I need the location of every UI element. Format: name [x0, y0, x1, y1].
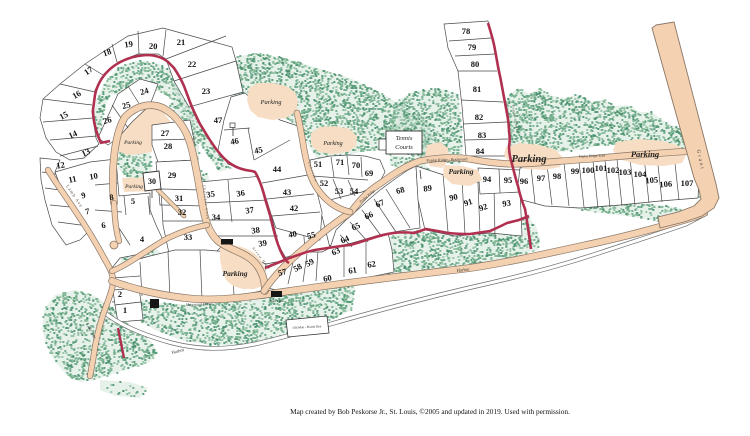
svg-text:98: 98 — [553, 171, 562, 181]
svg-text:Map created by Bob Peskorse Jr: Map created by Bob Peskorse Jr., St. Lou… — [290, 407, 570, 416]
svg-text:Tennis: Tennis — [396, 135, 413, 142]
svg-text:53: 53 — [335, 186, 344, 196]
svg-text:47: 47 — [214, 115, 223, 125]
svg-text:107: 107 — [681, 178, 695, 188]
svg-text:61: 61 — [347, 264, 357, 275]
svg-text:69: 69 — [365, 168, 374, 178]
svg-text:62: 62 — [366, 258, 376, 269]
svg-text:33: 33 — [184, 232, 193, 242]
svg-text:44: 44 — [273, 164, 282, 174]
svg-text:70: 70 — [352, 160, 361, 170]
svg-text:Parking: Parking — [631, 149, 660, 159]
svg-text:10: 10 — [88, 170, 98, 181]
svg-text:100: 100 — [582, 165, 595, 175]
svg-text:101: 101 — [595, 163, 608, 173]
svg-text:82: 82 — [475, 112, 484, 122]
svg-text:Maywood Drive: Maywood Drive — [186, 301, 213, 307]
svg-text:Courts: Courts — [395, 144, 413, 151]
svg-text:19: 19 — [124, 38, 134, 49]
svg-text:39: 39 — [258, 237, 268, 248]
svg-text:12: 12 — [55, 159, 65, 170]
svg-text:2: 2 — [118, 289, 122, 299]
svg-text:29: 29 — [168, 170, 177, 180]
svg-text:103: 103 — [619, 167, 632, 177]
svg-text:80: 80 — [471, 59, 480, 69]
svg-text:106: 106 — [659, 178, 673, 189]
svg-text:22: 22 — [188, 59, 197, 69]
svg-text:1: 1 — [123, 305, 127, 315]
svg-text:93: 93 — [502, 197, 512, 208]
svg-text:40: 40 — [287, 228, 297, 239]
svg-text:20: 20 — [149, 41, 158, 52]
svg-text:30: 30 — [148, 177, 156, 186]
svg-text:84: 84 — [476, 146, 485, 156]
svg-text:31: 31 — [175, 193, 184, 203]
svg-text:79: 79 — [468, 42, 477, 52]
svg-text:28: 28 — [164, 141, 173, 151]
svg-text:83: 83 — [478, 130, 487, 140]
svg-text:54: 54 — [350, 186, 359, 196]
svg-text:Parking: Parking — [123, 140, 142, 146]
svg-text:23: 23 — [202, 86, 211, 96]
svg-text:94: 94 — [483, 174, 492, 184]
svg-text:Parking: Parking — [511, 154, 546, 165]
svg-text:95: 95 — [504, 175, 513, 185]
svg-text:Parking: Parking — [222, 269, 247, 278]
svg-text:105: 105 — [645, 174, 659, 185]
svg-text:99: 99 — [571, 166, 580, 176]
svg-text:97: 97 — [537, 173, 546, 183]
svg-text:Parking: Parking — [124, 184, 143, 190]
svg-text:42: 42 — [290, 203, 299, 213]
svg-text:71: 71 — [336, 157, 345, 167]
svg-text:34: 34 — [212, 212, 221, 222]
svg-text:78: 78 — [462, 26, 471, 36]
svg-text:5: 5 — [131, 196, 135, 206]
svg-text:27: 27 — [161, 128, 170, 138]
svg-text:89: 89 — [423, 182, 433, 193]
svg-text:21: 21 — [177, 37, 186, 47]
svg-text:52: 52 — [320, 178, 329, 188]
svg-text:Parking: Parking — [448, 167, 473, 176]
svg-text:96: 96 — [520, 176, 529, 186]
svg-text:102: 102 — [607, 165, 620, 175]
svg-text:Park Place: Park Place — [270, 299, 284, 303]
svg-text:Parking: Parking — [260, 99, 283, 106]
svg-text:36: 36 — [236, 187, 246, 198]
svg-text:51: 51 — [314, 159, 323, 169]
svg-text:38: 38 — [251, 224, 261, 235]
svg-text:32: 32 — [178, 207, 187, 217]
svg-text:43: 43 — [283, 187, 292, 197]
svg-text:46: 46 — [229, 135, 239, 146]
svg-text:81: 81 — [473, 84, 482, 94]
svg-text:Parking: Parking — [322, 141, 342, 147]
